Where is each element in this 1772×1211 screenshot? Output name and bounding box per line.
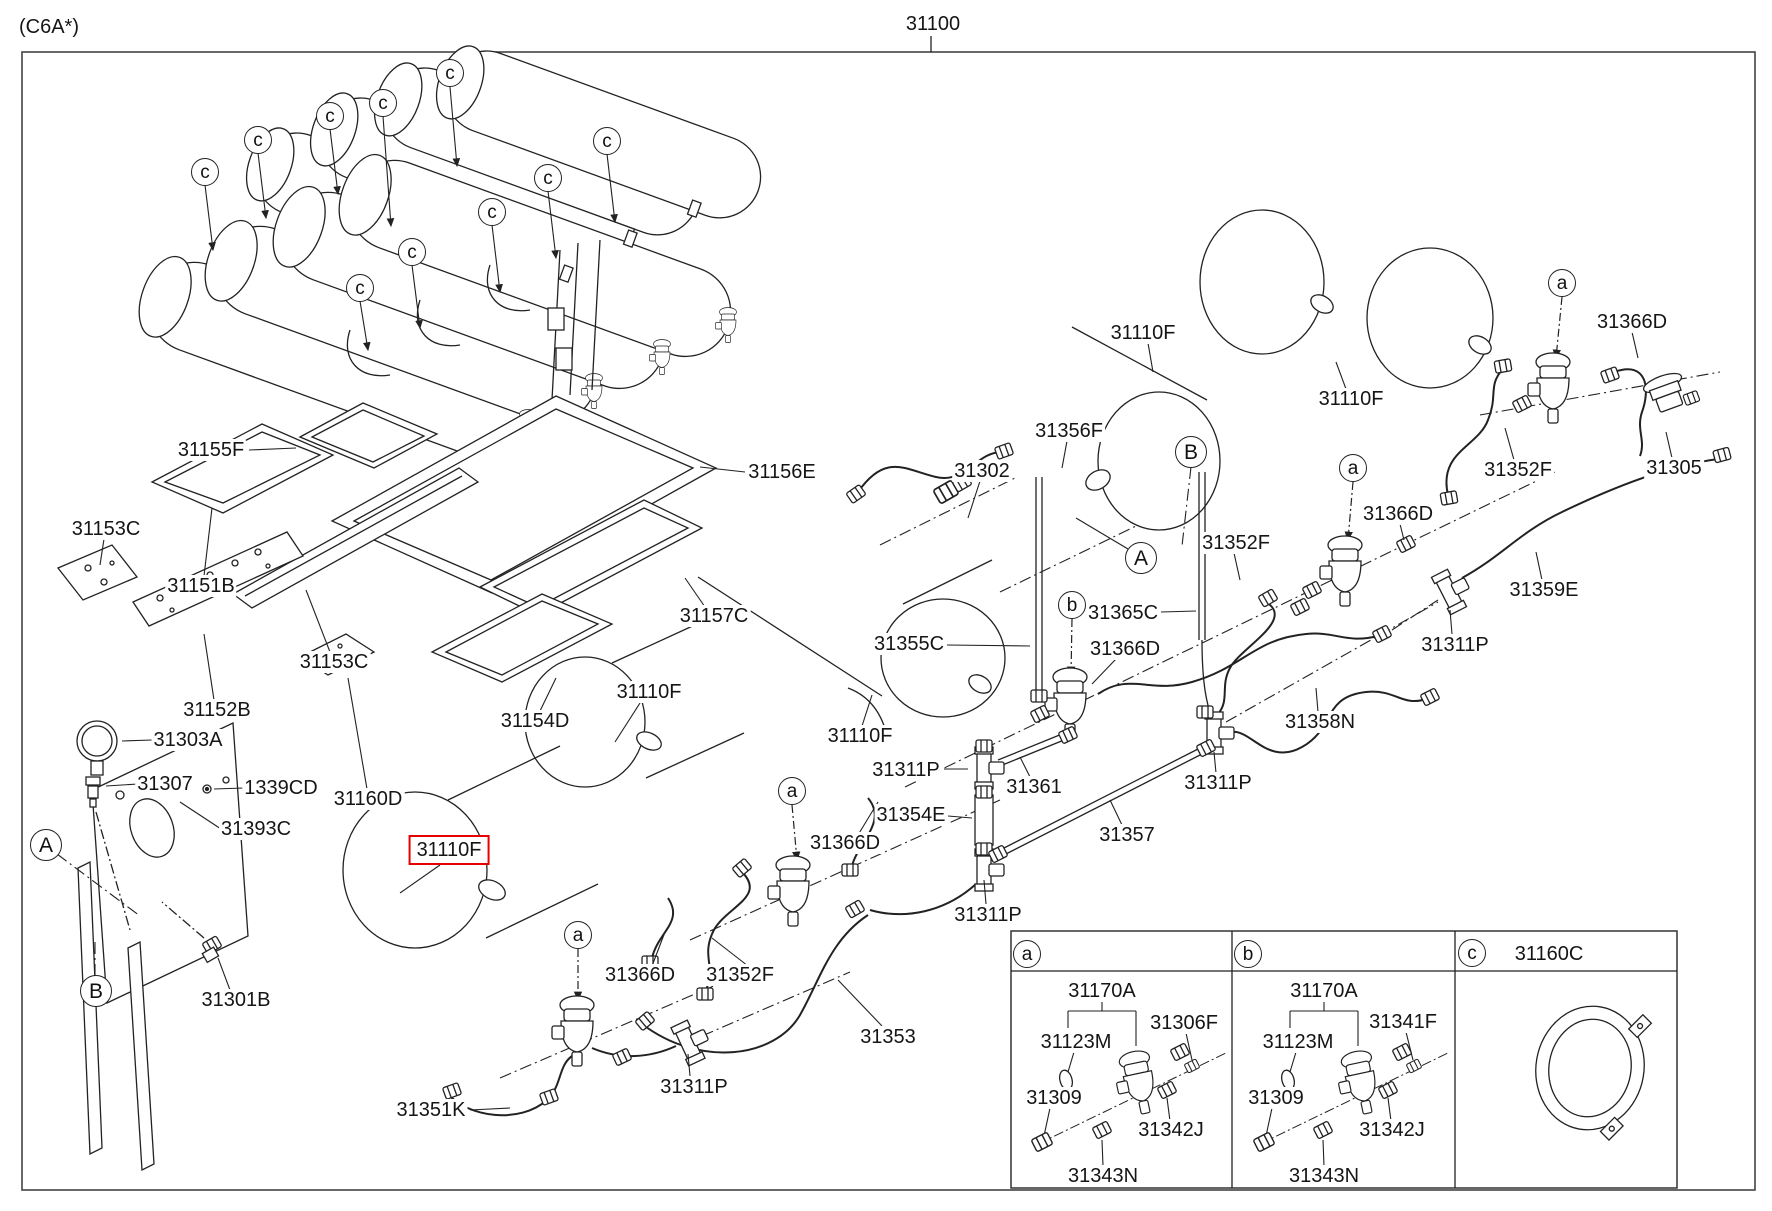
part-label-31343n-58[interactable]: 31343N xyxy=(1287,1165,1361,1187)
part-label-31358n-37[interactable]: 31358N xyxy=(1283,711,1357,733)
part-label-31366d-44[interactable]: 31366D xyxy=(1595,311,1669,333)
callout-a-19: a xyxy=(1013,940,1041,968)
part-label-31309-56[interactable]: 31309 xyxy=(1246,1087,1306,1109)
part-label-1339cd-9[interactable]: 1339CD xyxy=(242,777,319,799)
callout-a-17: a xyxy=(1339,454,1367,482)
callout-c-9: c xyxy=(593,127,621,155)
part-label-31302-21[interactable]: 31302 xyxy=(952,460,1012,482)
callout-c-5: c xyxy=(346,274,374,302)
part-label-31342j-57[interactable]: 31342J xyxy=(1357,1119,1427,1141)
part-label-31170a-47[interactable]: 31170A xyxy=(1066,980,1137,1002)
part-label-31353-30[interactable]: 31353 xyxy=(858,1026,918,1048)
part-label-31366d-25[interactable]: 31366D xyxy=(1088,638,1162,660)
part-label-31110f-13[interactable]: 31110F xyxy=(409,835,490,865)
part-label-31306f-49[interactable]: 31306F xyxy=(1148,1012,1220,1034)
part-label-31156e-17[interactable]: 31156E xyxy=(746,461,817,483)
part-label-31359e-39[interactable]: 31359E xyxy=(1508,579,1581,601)
callout-c-21: c xyxy=(1458,939,1486,967)
callout-a-14: a xyxy=(564,921,592,949)
callout-B-11: B xyxy=(80,975,112,1007)
part-label-31366d-26[interactable]: 31366D xyxy=(808,832,882,854)
part-label-31361-32[interactable]: 31361 xyxy=(1004,776,1064,798)
callout-c-1: c xyxy=(244,126,272,154)
part-label-31307-8[interactable]: 31307 xyxy=(135,773,195,795)
part-label-31110f-42[interactable]: 31110F xyxy=(1317,388,1386,410)
part-label-31311p-38[interactable]: 31311P xyxy=(1419,634,1490,656)
part-label-31123m-54[interactable]: 31123M xyxy=(1261,1031,1336,1053)
part-label-31160d-10[interactable]: 31160D xyxy=(332,788,405,810)
callout-A-10: A xyxy=(30,829,62,861)
part-label-31301b-12[interactable]: 31301B xyxy=(200,989,273,1011)
part-label-31123m-48[interactable]: 31123M xyxy=(1039,1031,1114,1053)
cng-tank-bundle xyxy=(128,37,772,471)
callout-c-7: c xyxy=(478,198,506,226)
callout-c-8: c xyxy=(534,164,562,192)
callout-c-6: c xyxy=(398,238,426,266)
part-label-31303a-7[interactable]: 31303A xyxy=(152,729,225,751)
part-label-c6a-0[interactable]: (C6A*) xyxy=(17,16,81,38)
callout-b-16: b xyxy=(1058,591,1086,619)
part-label-31366d-41[interactable]: 31366D xyxy=(1361,503,1435,525)
valve-31305 xyxy=(1641,366,1700,417)
parts-diagram: (C6A*)3110031155F31153C31151B31153C31152… xyxy=(0,0,1772,1211)
part-label-31365c-24[interactable]: 31365C xyxy=(1086,602,1160,624)
part-label-31153c-3[interactable]: 31153C xyxy=(70,518,143,540)
part-label-31110f-23[interactable]: 31110F xyxy=(1109,322,1178,344)
part-label-31341f-55[interactable]: 31341F xyxy=(1367,1011,1439,1033)
part-label-31154d-16[interactable]: 31154D xyxy=(499,710,572,732)
part-label-31351k-14[interactable]: 31351K xyxy=(395,1099,468,1121)
part-label-31157c-18[interactable]: 31157C xyxy=(678,605,751,627)
part-label-31352f-28[interactable]: 31352F xyxy=(704,964,776,986)
callout-a-18: a xyxy=(1548,269,1576,297)
piping xyxy=(57,297,1731,1115)
part-label-31354e-33[interactable]: 31354E xyxy=(875,804,948,826)
callout-c-3: c xyxy=(369,89,397,117)
part-label-31309-50[interactable]: 31309 xyxy=(1024,1087,1084,1109)
callout-b-20: b xyxy=(1234,940,1262,968)
part-label-31311p-35[interactable]: 31311P xyxy=(1182,772,1253,794)
part-label-31352f-40[interactable]: 31352F xyxy=(1200,532,1272,554)
part-label-31311p-31[interactable]: 31311P xyxy=(870,759,941,781)
part-label-31151b-4[interactable]: 31151B xyxy=(165,575,236,597)
part-label-31152b-6[interactable]: 31152B xyxy=(181,699,252,721)
callout-c-0: c xyxy=(191,158,219,186)
part-label-31355c-20[interactable]: 31355C xyxy=(872,633,946,655)
callout-A-13: A xyxy=(1125,542,1157,574)
mounting-plates xyxy=(58,396,716,682)
part-label-31170a-53[interactable]: 31170A xyxy=(1288,980,1359,1002)
part-label-31155f-2[interactable]: 31155F xyxy=(176,439,246,461)
callout-a-15: a xyxy=(778,777,806,805)
part-label-31393c-11[interactable]: 31393C xyxy=(219,818,293,840)
callout-c-2: c xyxy=(316,102,344,130)
tank-valve xyxy=(552,996,594,1066)
table-cell-c xyxy=(1525,998,1654,1144)
part-label-31311p-29[interactable]: 31311P xyxy=(658,1076,729,1098)
part-label-31356f-22[interactable]: 31356F xyxy=(1033,420,1105,442)
part-label-31352f-43[interactable]: 31352F xyxy=(1482,459,1554,481)
part-label-31110f-19[interactable]: 31110F xyxy=(826,725,895,747)
part-label-31357-34[interactable]: 31357 xyxy=(1097,824,1157,846)
part-label-31153c-5[interactable]: 31153C xyxy=(298,651,371,673)
part-label-31305-45[interactable]: 31305 xyxy=(1644,457,1704,479)
part-label-31160c-46[interactable]: 31160C xyxy=(1513,943,1586,965)
part-label-31311p-36[interactable]: 31311P xyxy=(952,904,1023,926)
part-label-31342j-51[interactable]: 31342J xyxy=(1136,1119,1206,1141)
part-label-31100-1[interactable]: 31100 xyxy=(904,13,962,35)
callout-c-4: c xyxy=(436,59,464,87)
part-label-31343n-52[interactable]: 31343N xyxy=(1066,1165,1140,1187)
part-label-31366d-27[interactable]: 31366D xyxy=(603,964,677,986)
callout-B-12: B xyxy=(1175,436,1207,468)
detail-table xyxy=(1011,931,1677,1188)
part-label-31110f-15[interactable]: 31110F xyxy=(615,681,684,703)
